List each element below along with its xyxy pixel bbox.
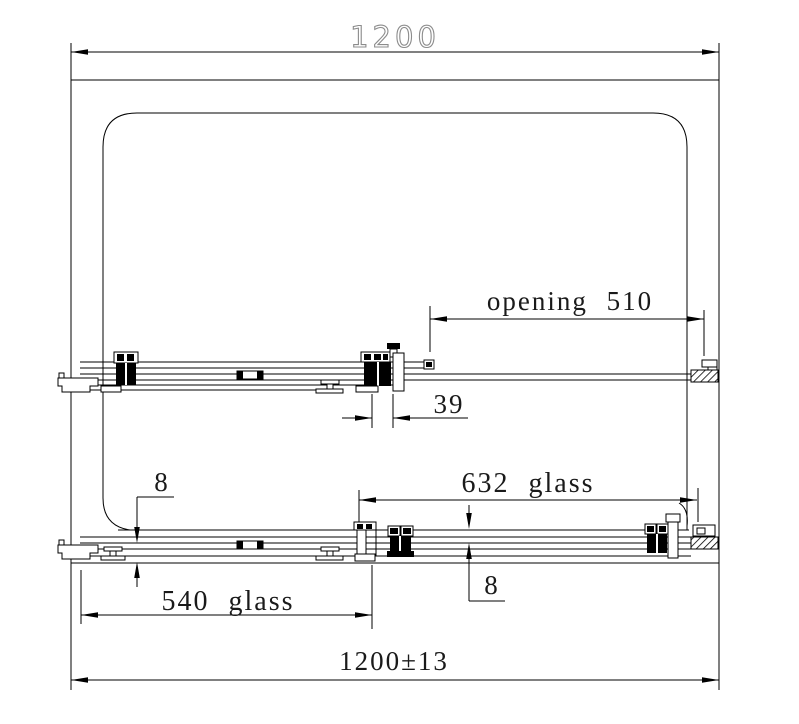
arrowhead-right bbox=[702, 677, 719, 683]
arrowhead-right bbox=[393, 415, 410, 421]
dimension-overall-top: 1200 bbox=[71, 20, 719, 55]
carriage-bolt bbox=[364, 354, 371, 360]
arrowhead-down bbox=[466, 513, 472, 529]
bracket-base bbox=[316, 389, 343, 393]
arrowhead-left bbox=[81, 612, 98, 618]
roller-bolt bbox=[647, 526, 654, 532]
knob-cap bbox=[387, 343, 400, 349]
label-fixed-panel-glass: 632 glass bbox=[462, 468, 595, 499]
label-panel-overlap: 39 bbox=[434, 389, 465, 419]
roller-bolt bbox=[403, 528, 411, 534]
glass-panel-outline bbox=[103, 113, 687, 530]
bracket-top bbox=[321, 380, 339, 384]
dimension-door-glass: 540 glass bbox=[81, 565, 372, 629]
dimension-overlap: 39 bbox=[342, 389, 468, 428]
label-opening-width: opening 510 bbox=[487, 286, 653, 316]
arrowhead-left bbox=[71, 49, 88, 55]
handle-end bbox=[257, 541, 263, 549]
dimension-opening: opening 510 bbox=[430, 286, 704, 356]
bracket-top bbox=[104, 547, 122, 551]
lower-track-assembly bbox=[58, 514, 718, 561]
arrowhead-right bbox=[355, 612, 372, 618]
bracket-stem bbox=[327, 384, 333, 389]
upper-track-assembly bbox=[58, 343, 718, 393]
bracket-stem bbox=[327, 551, 333, 556]
arrowhead-right bbox=[680, 497, 697, 503]
end-cap-nub bbox=[59, 540, 64, 545]
roller-bolt bbox=[390, 528, 398, 534]
edge-channel bbox=[357, 530, 366, 556]
carriage-foot bbox=[356, 386, 378, 392]
roller-bolt bbox=[659, 526, 666, 532]
bracket-top bbox=[321, 547, 339, 551]
roller-carriage-upper-left bbox=[101, 352, 138, 392]
arrowhead-left bbox=[359, 497, 376, 503]
end-cap-nub bbox=[59, 373, 64, 378]
carriage-bolt bbox=[383, 354, 388, 360]
end-cap-body bbox=[58, 545, 98, 559]
dimension-overall-tolerance: 1200±13 bbox=[71, 646, 719, 683]
arrowhead-left bbox=[430, 316, 447, 322]
wall-profile-hatched bbox=[691, 537, 718, 549]
end-cap-left-upper bbox=[58, 373, 98, 392]
roller-foot bbox=[101, 386, 121, 392]
carriage-bolt bbox=[374, 354, 381, 360]
roller-carriage-lower-mid bbox=[387, 526, 414, 557]
rail-cap-core bbox=[426, 362, 432, 367]
edge-plate bbox=[393, 353, 404, 391]
label-overall-width-tolerance: 1200±13 bbox=[339, 646, 449, 676]
label-glass-thickness-right: 8 bbox=[484, 570, 500, 600]
arrowhead-right bbox=[702, 49, 719, 55]
clamp-top bbox=[702, 360, 717, 367]
dimension-fixed-glass: 632 glass bbox=[359, 468, 698, 530]
arrowhead-left bbox=[355, 415, 372, 421]
arrowhead-up bbox=[466, 543, 472, 559]
wall-bracket-upper bbox=[691, 360, 718, 382]
edge-foot bbox=[355, 554, 375, 561]
label-door-panel-glass: 540 glass bbox=[162, 586, 295, 617]
label-overall-width-top: 1200 bbox=[350, 20, 440, 54]
roller-base bbox=[387, 551, 414, 557]
rail-end-cap-upper bbox=[424, 360, 434, 369]
arrowhead-up bbox=[134, 562, 140, 578]
edge-body bbox=[668, 522, 678, 558]
handle-end bbox=[237, 371, 243, 379]
support-bracket-lower-left bbox=[101, 547, 125, 560]
arrowhead-right bbox=[687, 316, 704, 322]
dimension-thickness-right: 8 bbox=[466, 505, 505, 601]
edge-bolt bbox=[366, 524, 372, 529]
clamp-detail bbox=[697, 528, 705, 534]
handle-end bbox=[257, 371, 263, 379]
wall-bracket-lower bbox=[691, 525, 718, 549]
roller-bolt bbox=[127, 354, 134, 361]
wall-profile-hatched bbox=[691, 370, 718, 382]
handle-lower bbox=[237, 541, 263, 549]
support-bracket-upper bbox=[316, 380, 343, 393]
bracket-base bbox=[101, 556, 125, 560]
edge-cap bbox=[666, 514, 680, 522]
bracket-base bbox=[316, 556, 343, 560]
label-glass-thickness-left: 8 bbox=[154, 467, 170, 497]
roller-bolt bbox=[117, 354, 124, 361]
arrowhead-left bbox=[71, 677, 88, 683]
roller-carriage-lower-right bbox=[645, 524, 668, 553]
bracket-stem bbox=[110, 551, 116, 556]
door-edge-lower bbox=[354, 522, 376, 561]
shower-door-drawing: 1200 bbox=[0, 0, 799, 724]
panel-edge-lower-right bbox=[666, 514, 680, 558]
edge-bolt bbox=[357, 524, 363, 529]
handle-upper bbox=[237, 371, 263, 379]
handle-end bbox=[237, 541, 243, 549]
dimension-thickness-left: 8 bbox=[134, 467, 174, 587]
arrowhead-down bbox=[134, 527, 140, 543]
drawing-canvas: 1200 bbox=[0, 0, 799, 724]
